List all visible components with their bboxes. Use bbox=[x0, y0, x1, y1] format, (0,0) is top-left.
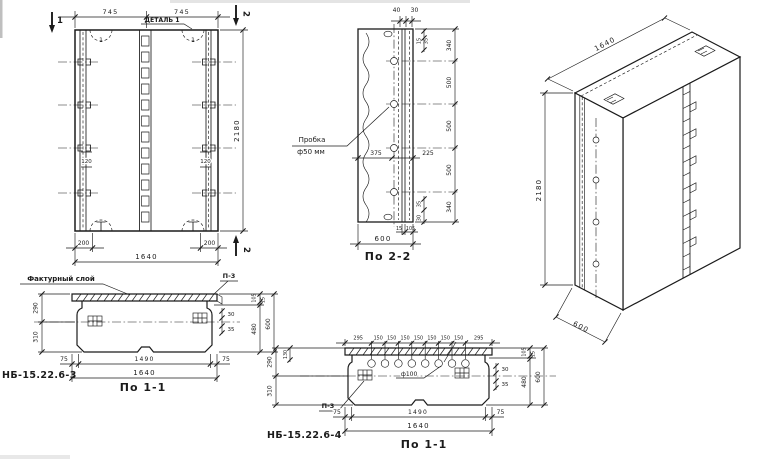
dim-75-right: 75 bbox=[497, 409, 505, 416]
isometric-view: 1640 2180 600 bbox=[535, 16, 740, 345]
dim-120-left: 120 bbox=[81, 159, 92, 165]
dim-150-1: 150 bbox=[374, 336, 383, 342]
dim-15-tr: 15 bbox=[417, 38, 423, 44]
dim-2180-iso: 2180 bbox=[535, 179, 543, 202]
dim-500-3: 500 bbox=[446, 164, 453, 176]
dim-120-right: 120 bbox=[200, 159, 211, 165]
dim-30-right: 30 bbox=[228, 312, 235, 318]
dim-150-3: 150 bbox=[401, 336, 410, 342]
dim-1640: 1640 bbox=[133, 369, 156, 377]
detail-1-label: ДЕТАЛЬ 1 bbox=[144, 17, 179, 24]
dim-1490: 1490 bbox=[134, 356, 154, 363]
panel-mark-nb-15-22-6-3: НБ-15.22.6-3 bbox=[2, 370, 77, 381]
plug-sleeve-boxes bbox=[88, 313, 207, 326]
dim-340-bottom: 340 bbox=[446, 201, 453, 213]
detail-bubble-left: 1 bbox=[99, 37, 103, 44]
p3-leader bbox=[214, 281, 238, 294]
dim-40: 40 bbox=[393, 7, 401, 14]
dim-30: 30 bbox=[411, 7, 419, 14]
dim-1640-iso: 1640 bbox=[593, 35, 617, 53]
dim-1640: 1640 bbox=[407, 422, 430, 430]
dim-ticks bbox=[421, 28, 426, 224]
plug-label-line2: ф50 мм bbox=[297, 148, 325, 156]
facing-layer-lines bbox=[402, 29, 405, 222]
dim-480: 480 bbox=[521, 376, 528, 388]
section-2-2-view: Пробка ф50 мм 40 30 15 35 35 30 340 500 … bbox=[292, 7, 459, 263]
dim-35-right: 35 bbox=[228, 327, 235, 333]
plug-label-line1: Пробка bbox=[299, 136, 326, 144]
panel-outline bbox=[75, 30, 218, 231]
dim-200-right: 200 bbox=[204, 240, 216, 247]
dim-130: 130 bbox=[283, 350, 289, 359]
dim-600: 600 bbox=[265, 318, 272, 330]
facing-label-leader bbox=[20, 284, 130, 295]
dim-225: 225 bbox=[422, 150, 434, 157]
dim-600: 600 bbox=[375, 235, 392, 243]
dim-600-iso: 600 bbox=[572, 320, 591, 335]
dim-150-7: 150 bbox=[454, 336, 463, 342]
detail-label-leader bbox=[141, 24, 192, 29]
dim-75-left: 75 bbox=[60, 356, 68, 363]
dim-150-4: 150 bbox=[414, 336, 423, 342]
panel-rib-lines bbox=[80, 30, 211, 231]
plug-centerlines bbox=[58, 62, 236, 193]
dim-375: 375 bbox=[370, 150, 382, 157]
caption-po-1-1: По 1-1 bbox=[401, 438, 447, 451]
facing-layer-strip bbox=[72, 294, 217, 301]
dim-310: 310 bbox=[33, 331, 40, 343]
dim-105-right: 105 bbox=[522, 347, 528, 356]
dim-295-right: 295 bbox=[474, 336, 484, 342]
hole-diameter-label: ф100 bbox=[401, 371, 418, 378]
rib-dim-ticks bbox=[81, 152, 211, 167]
dim-200-left: 200 bbox=[78, 240, 90, 247]
bottom-dimension-lines bbox=[66, 233, 227, 266]
bottom-slot bbox=[384, 214, 392, 220]
dim-30-right: 30 bbox=[502, 367, 509, 373]
dim-600: 600 bbox=[535, 371, 542, 383]
section-mark-2-bottom-right: 2 bbox=[233, 235, 251, 256]
plug-marks bbox=[78, 59, 215, 196]
rib-hatch-lines bbox=[83, 32, 209, 229]
dim-15-bottom: 15 bbox=[396, 226, 402, 232]
section-mark-1-label: 1 bbox=[57, 16, 63, 26]
dim-290: 290 bbox=[33, 302, 40, 314]
dim-745-right: 745 bbox=[174, 8, 190, 16]
dim-2180: 2180 bbox=[233, 119, 241, 142]
facing-hatch bbox=[349, 348, 487, 355]
dim-15-right: 15 bbox=[261, 297, 267, 303]
keyed-face-wavy-line bbox=[363, 33, 369, 222]
detail-callout-arcs bbox=[90, 30, 204, 231]
panel-body-profile bbox=[77, 301, 212, 352]
facing-hatch bbox=[76, 294, 214, 301]
dim-15-right: 15 bbox=[531, 351, 537, 357]
dim-105-right: 105 bbox=[252, 293, 258, 302]
section-mark-2-top-right: 2 bbox=[233, 5, 251, 26]
detail-bubble-right: 1 bbox=[191, 37, 195, 44]
dim-35-right: 35 bbox=[502, 382, 509, 388]
dim-500-1: 500 bbox=[446, 77, 453, 89]
dim-480: 480 bbox=[251, 323, 258, 335]
dim-150-2: 150 bbox=[387, 336, 396, 342]
facing-end-hook bbox=[217, 294, 222, 304]
technical-drawing: 745 745 ДЕТАЛЬ 1 1 1 1 2 2 2180 120 120 … bbox=[0, 0, 760, 459]
dim-35-br: 35 bbox=[417, 201, 423, 207]
left-dim-lines bbox=[38, 294, 82, 352]
dim-75-right: 75 bbox=[222, 356, 230, 363]
dim-295-left: 295 bbox=[353, 336, 363, 342]
section-mark-2-label-bottom: 2 bbox=[241, 247, 251, 253]
dim-745-left: 745 bbox=[102, 8, 118, 16]
dim-290: 290 bbox=[267, 356, 274, 368]
round-holes bbox=[368, 360, 470, 368]
dim-150-5: 150 bbox=[427, 336, 436, 342]
dim-310: 310 bbox=[267, 385, 274, 397]
top-slot bbox=[384, 31, 392, 37]
hidden-lines bbox=[399, 31, 410, 220]
caption-po-2-2: По 2-2 bbox=[365, 250, 411, 263]
detail-p3-label: П-3 bbox=[223, 272, 236, 280]
dim-105-bottom: 105 bbox=[406, 226, 415, 232]
height-dim-line bbox=[540, 93, 573, 285]
dim-1490: 1490 bbox=[408, 409, 428, 416]
dim-30-br: 30 bbox=[417, 215, 423, 221]
section-mark-1-top-left: 1 bbox=[49, 12, 63, 33]
dim-35-tr: 35 bbox=[424, 38, 430, 44]
plan-section-view-nb-15-22-6-3: Фактурный слой П-3 290 310 30 35 105 15 … bbox=[2, 272, 278, 394]
dim-75-left: 75 bbox=[333, 409, 341, 416]
dim-1640: 1640 bbox=[135, 253, 158, 261]
dim-340-top: 340 bbox=[446, 40, 453, 52]
front-elevation-view: 745 745 ДЕТАЛЬ 1 1 1 1 2 2 2180 120 120 … bbox=[49, 5, 251, 266]
plan-section-view-nb-15-22-6-4: 295 150 150 150 150 150 150 150 295 ф100… bbox=[267, 336, 557, 452]
blueprint-sheet: 745 745 ДЕТАЛЬ 1 1 1 1 2 2 2180 120 120 … bbox=[0, 0, 760, 459]
caption-po-1-1: По 1-1 bbox=[120, 381, 166, 394]
dim-150-6: 150 bbox=[441, 336, 450, 342]
dim-500-2: 500 bbox=[446, 120, 453, 132]
facing-layer-label: Фактурный слой bbox=[27, 275, 95, 283]
groove-ladder bbox=[142, 36, 150, 222]
panel-mark-nb-15-22-6-4: НБ-15.22.6-4 bbox=[267, 430, 342, 441]
section-mark-2-label: 2 bbox=[241, 11, 251, 17]
